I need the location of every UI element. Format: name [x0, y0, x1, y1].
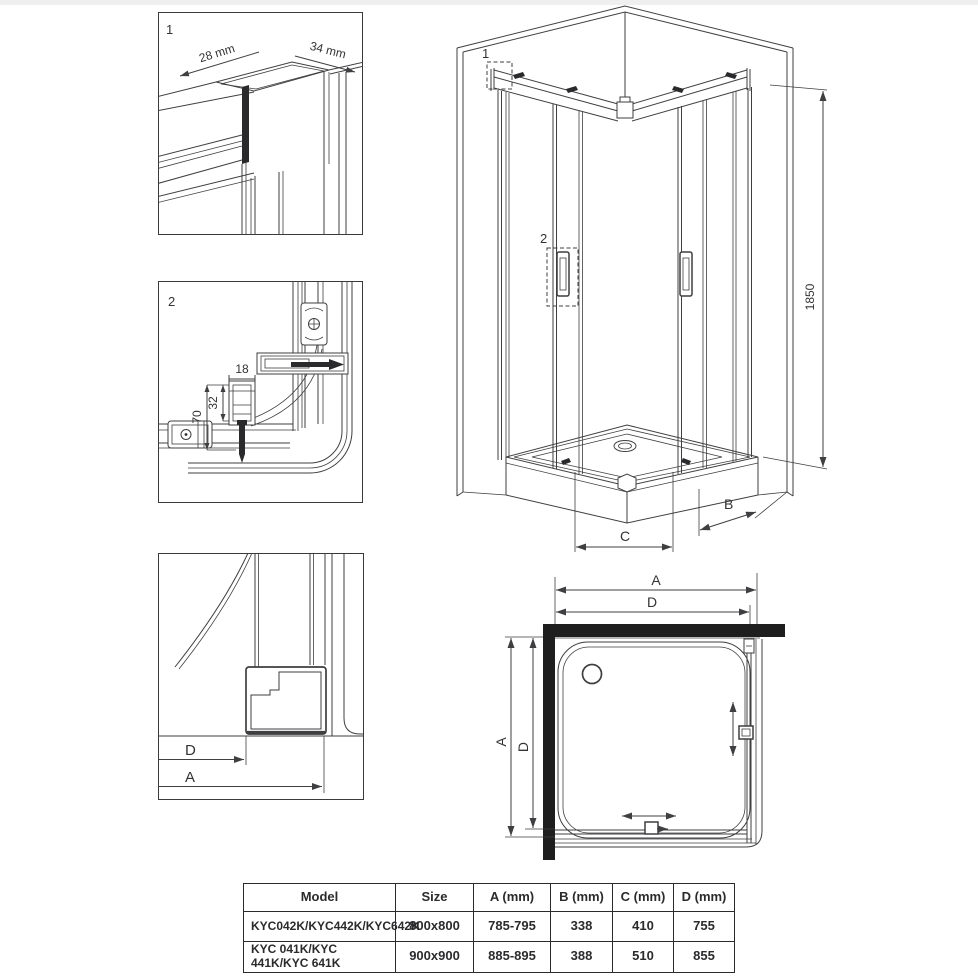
detail-2-figure: 2 18 32 70: [158, 281, 363, 503]
bottom-profile-section: [246, 667, 326, 734]
iso-callout-2: 2: [540, 231, 547, 246]
plan-bottom-handle: [645, 822, 658, 834]
detail-2-number: 2: [168, 294, 175, 309]
spec-table: Model Size A (mm) B (mm) C (mm) D (mm) K…: [243, 883, 735, 973]
plan-view: A D A D: [490, 560, 820, 890]
detail-3-figure: D A: [158, 553, 364, 800]
iso-dimensions: [487, 62, 827, 552]
cell-c: 510: [613, 942, 674, 973]
detail-2-drawing: [158, 281, 352, 473]
iso-walls: [457, 6, 793, 496]
dim-label-32: 32: [206, 396, 220, 410]
iso-top-rails: [491, 68, 750, 121]
dim-label-1850: 1850: [803, 283, 817, 310]
plan-doors: [622, 702, 753, 834]
plan-dim-a-top: A: [651, 572, 661, 588]
cell-a: 885-895: [474, 942, 551, 973]
plan-dim-a-left: A: [493, 737, 509, 747]
cell-model: KYC 041K/KYC 441K/KYC 641K: [244, 942, 396, 973]
cell-d: 755: [674, 912, 735, 942]
cell-b: 338: [551, 912, 613, 942]
plan-walls: [543, 624, 785, 860]
cell-size: 900x900: [396, 942, 474, 973]
cell-model: KYC042K/KYC442K/KYC642K: [244, 912, 396, 942]
dim-label-18: 18: [235, 362, 249, 376]
dim-label-b: B: [724, 496, 733, 512]
col-header-size: Size: [396, 884, 474, 912]
cell-d: 855: [674, 942, 735, 973]
plan-dim-d-top: D: [647, 594, 657, 610]
tray-outline: [558, 642, 750, 838]
technical-sheet: 1 28 mm 34 mm: [0, 0, 978, 978]
corner-block: [617, 102, 633, 118]
cell-b: 388: [551, 942, 613, 973]
table-header-row: Model Size A (mm) B (mm) C (mm) D (mm): [244, 884, 735, 912]
screw-tip: [239, 454, 245, 463]
col-header-c: C (mm): [613, 884, 674, 912]
glass-slot: [242, 85, 249, 164]
iso-shower-tray: [506, 425, 758, 523]
iso-callout-1: 1: [482, 46, 489, 61]
isometric-view: 1 2 1850 B C: [430, 0, 860, 580]
dim-label-70: 70: [190, 410, 204, 424]
col-header-b: B (mm): [551, 884, 613, 912]
detail-1-drawing: [158, 52, 363, 235]
left-door-handle: [557, 252, 569, 296]
table-row: KYC042K/KYC442K/KYC642K 800x800 785-795 …: [244, 912, 735, 942]
right-door-handle: [680, 252, 692, 296]
drain: [583, 665, 602, 684]
col-header-d: D (mm): [674, 884, 735, 912]
dim-label-a: A: [185, 769, 195, 786]
table-row: KYC 041K/KYC 441K/KYC 641K 900x900 885-8…: [244, 942, 735, 973]
plan-dim-d-left: D: [515, 742, 531, 752]
detail-1-figure: 1 28 mm 34 mm: [158, 12, 363, 235]
dim-label-d: D: [185, 742, 196, 759]
col-header-a: A (mm): [474, 884, 551, 912]
tray-corner-cap: [618, 474, 636, 492]
iso-door-panels: [498, 87, 752, 474]
col-header-model: Model: [244, 884, 396, 912]
dim-label-28mm: 28 mm: [197, 41, 236, 65]
cell-a: 785-795: [474, 912, 551, 942]
detail-1-number: 1: [166, 22, 173, 37]
cell-c: 410: [613, 912, 674, 942]
plan-right-handle: [739, 726, 753, 739]
dim-label-c: C: [620, 528, 630, 544]
dim-label-34mm: 34 mm: [308, 39, 347, 61]
